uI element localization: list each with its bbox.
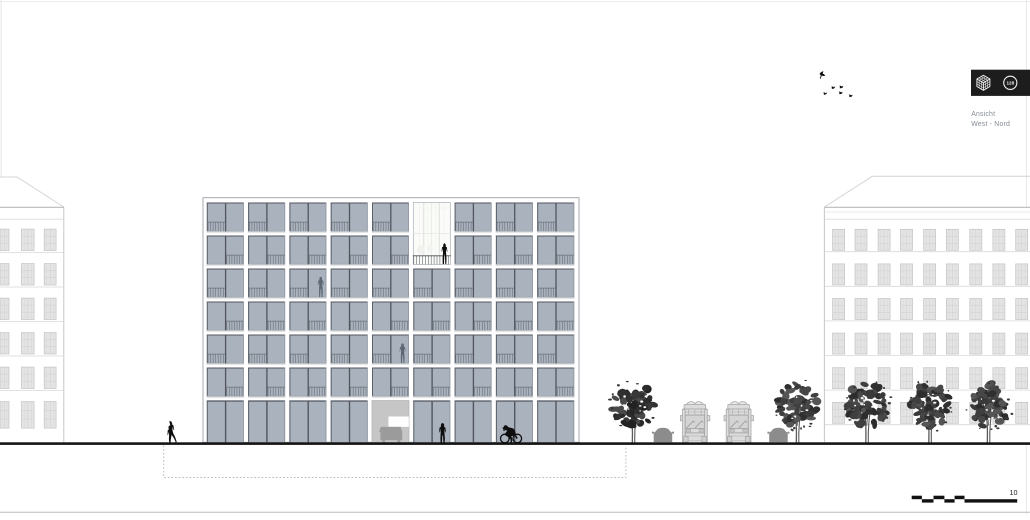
svg-text:10: 10: [1010, 488, 1018, 497]
svg-text:128: 128: [1006, 81, 1014, 86]
svg-text:West - Nord: West - Nord: [971, 121, 1010, 128]
svg-text:Ansicht: Ansicht: [971, 111, 995, 118]
